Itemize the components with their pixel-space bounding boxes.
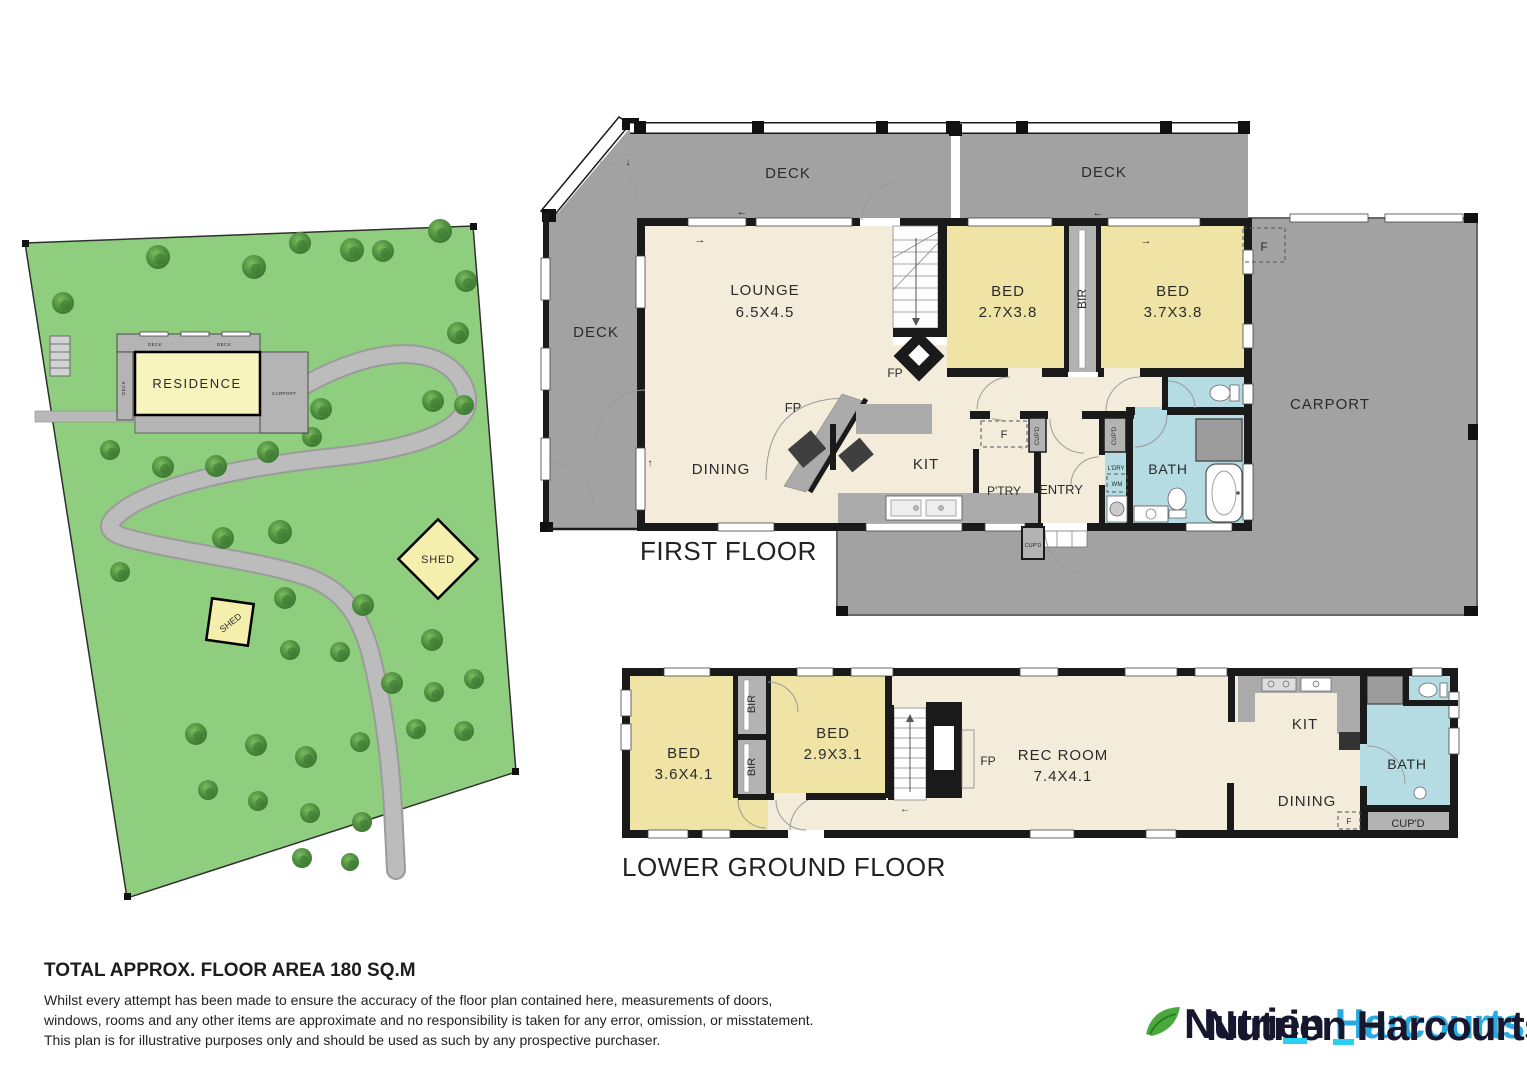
wall-bir — [1096, 226, 1101, 372]
tree-shade — [251, 264, 262, 275]
post — [1464, 213, 1478, 223]
disclaimer-line-1: Whilst every attempt has been made to en… — [44, 990, 904, 1010]
tree-shade — [213, 463, 223, 473]
bed1-label: BED — [991, 283, 1025, 300]
window — [1449, 728, 1459, 754]
arrow-down-icon: ↓ — [626, 157, 631, 168]
post — [949, 124, 962, 136]
wall-bir-mid — [738, 734, 768, 740]
lf-bir2-label: BIR — [746, 758, 758, 776]
shower — [1367, 676, 1403, 704]
site-deck-label-2: DECK — [217, 342, 231, 347]
tree-shade — [462, 403, 471, 412]
site-plan: DECK DECK DECK RESIDENCE CARPORT SHED SH… — [15, 215, 560, 905]
wall-bed2-right — [885, 676, 892, 798]
post — [752, 121, 764, 134]
tree-shade — [455, 330, 465, 340]
floor-area-title: TOTAL APPROX. FLOOR AREA 180 SQ.M — [44, 960, 904, 982]
lf-rec-size: 7.4X4.1 — [1034, 768, 1093, 785]
toilet — [1419, 683, 1447, 697]
sink — [1301, 678, 1331, 691]
window — [1030, 830, 1074, 838]
bed2-label: BED — [1156, 283, 1190, 300]
kitchen-bench-right — [1337, 676, 1360, 734]
tree-shade — [277, 529, 288, 540]
door-opening — [1008, 368, 1042, 377]
wall-stairs — [938, 226, 947, 337]
tree-shade — [155, 254, 166, 265]
cupd-label-1: CUP'D — [1035, 426, 1041, 445]
window — [756, 218, 852, 226]
site-window — [140, 332, 168, 336]
site-deck-label-side: DECK — [121, 381, 126, 395]
footer-block: TOTAL APPROX. FLOOR AREA 180 SQ.M Whilst… — [44, 960, 904, 1050]
window — [866, 523, 962, 531]
window — [688, 218, 746, 226]
logo-front-secondary: Harcourts — [1357, 1002, 1527, 1049]
lower-floor-title: LOWER GROUND FLOOR — [622, 852, 946, 882]
cupd-label-bottom: CUP'D — [1025, 543, 1042, 549]
kit-label: KIT — [913, 456, 939, 473]
lower-floor-svg: ← F BED 3.6X4.1 BED 2.9X3.1 BIR BIR FP R… — [615, 660, 1475, 885]
lounge-label: LOUNGE — [730, 282, 799, 299]
logo-front-primary: Nutrien — [1206, 1002, 1346, 1049]
wall-bath-bottom — [1367, 805, 1458, 811]
deck-side-label: DECK — [573, 324, 619, 341]
porch-step — [1043, 531, 1087, 547]
window — [1146, 830, 1176, 838]
lf-kit-label: KIT — [1292, 716, 1318, 733]
shed1-label: SHED — [421, 554, 455, 566]
post — [634, 121, 646, 134]
door-opening — [1043, 523, 1087, 531]
wall-bir — [1064, 226, 1069, 372]
window — [541, 258, 550, 300]
wall-fp — [830, 424, 836, 470]
tree-shade — [108, 448, 117, 457]
tree-shade — [60, 300, 70, 310]
window — [648, 830, 688, 838]
window — [985, 523, 1025, 531]
tree-shade — [300, 856, 309, 865]
lounge-size: 6.5X4.5 — [736, 304, 795, 321]
kitchen-bench-top — [856, 404, 932, 434]
carport-opening — [1385, 214, 1463, 222]
tree-shade — [349, 247, 360, 258]
arrow-right-icon: → — [695, 234, 706, 246]
first-floor-svg: FP CUP'D CUP'D CUP'D — [540, 115, 1490, 625]
stairs-lower — [894, 708, 926, 800]
boundary-peg — [470, 223, 477, 230]
oven — [1339, 732, 1360, 750]
window — [797, 668, 833, 676]
tree-shade — [206, 788, 215, 797]
tree-shade — [288, 648, 297, 657]
tree-shade — [462, 729, 471, 738]
tree-shade — [348, 860, 356, 868]
window — [1020, 668, 1058, 676]
room-bath — [1367, 703, 1450, 805]
tree-shade — [338, 650, 347, 659]
post — [1016, 121, 1028, 134]
toilet-wc — [1210, 385, 1239, 401]
carport-label: CARPORT — [1290, 396, 1370, 413]
brand-logo: Nutrien Harcourts Nutrien Harcourts — [1140, 988, 1527, 1072]
tree-shade — [318, 406, 328, 416]
post — [836, 606, 848, 616]
window — [541, 438, 550, 480]
window — [1243, 384, 1253, 404]
deck-side — [548, 213, 640, 530]
post — [540, 522, 553, 532]
window — [621, 690, 631, 716]
wall-wc-divider — [1405, 700, 1458, 706]
site-stairs — [50, 336, 70, 376]
door-opening — [1360, 744, 1367, 786]
tree-shade — [360, 820, 369, 829]
disclaimer-line-3: This plan is for illustrative purposes o… — [44, 1030, 904, 1050]
arrow-up-icon: ↑ — [648, 458, 653, 469]
door-opening — [860, 218, 900, 226]
post — [1160, 121, 1172, 134]
window — [664, 668, 710, 676]
first-floor-plan: FP CUP'D CUP'D CUP'D — [540, 115, 1490, 625]
wall-bed1-right — [733, 676, 738, 798]
vanity — [1134, 506, 1168, 522]
post — [1238, 121, 1250, 134]
sink — [886, 496, 962, 520]
lf-bed1-label: BED — [667, 745, 701, 762]
logo-front-layer: Nutrien Harcourts — [1206, 1002, 1527, 1050]
window — [968, 218, 1052, 226]
leaf-icon — [1144, 1004, 1184, 1042]
lf-rec-label: REC ROOM — [1018, 747, 1109, 764]
boundary-peg — [22, 240, 29, 247]
shower — [1196, 419, 1242, 461]
stairs-first-floor — [893, 226, 938, 328]
wall-bed1-bottom — [947, 368, 1068, 377]
tree-shade — [437, 228, 448, 239]
bath-label: BATH — [1148, 461, 1188, 477]
fp-label-2: FP — [785, 400, 802, 415]
arrow-right-icon: → — [1141, 235, 1152, 247]
tree-shade — [414, 727, 423, 736]
cooktop — [1262, 678, 1296, 691]
site-window — [222, 332, 250, 336]
window — [1412, 668, 1442, 676]
washer — [1107, 496, 1127, 522]
fridge-label: F — [1347, 817, 1352, 826]
entry-label: ENTRY — [1039, 482, 1083, 497]
tree-shade — [118, 570, 127, 579]
deck2-label: DECK — [1081, 164, 1127, 181]
dining-label: DINING — [692, 461, 751, 478]
logo-underline-1 — [1283, 1038, 1307, 1044]
wall-wc-left — [1162, 377, 1168, 410]
door-opening — [1099, 455, 1105, 485]
deck1-label: DECK — [765, 165, 811, 182]
lf-cupd-label: CUP'D — [1391, 818, 1424, 830]
cupd-label-2: CUP'D — [1112, 426, 1118, 445]
window — [541, 348, 550, 390]
carport-opening — [1290, 214, 1368, 222]
site-deck-top — [117, 334, 260, 352]
tree-shade — [282, 595, 292, 605]
window — [1186, 523, 1232, 531]
lower-floor-plan: ← F BED 3.6X4.1 BED 2.9X3.1 BIR BIR FP R… — [615, 660, 1475, 885]
bed2-size: 3.7X3.8 — [1144, 304, 1203, 321]
window — [636, 448, 645, 510]
tree-shade — [358, 740, 367, 749]
site-carport-label: CARPORT — [272, 391, 296, 396]
wall-bir-bottom — [738, 794, 768, 800]
ldry-label: L'DRY — [1107, 466, 1124, 472]
deck-divider — [951, 126, 960, 222]
tree-shade — [380, 248, 390, 258]
door-opening — [990, 411, 1020, 419]
wall-kitchen-stub — [1228, 676, 1235, 722]
tree-shade — [193, 731, 203, 741]
tree-shade — [463, 278, 473, 288]
lf-fp-label: FP — [980, 754, 995, 768]
tree-shade — [303, 754, 313, 764]
tree-shade — [389, 680, 399, 690]
basin — [1414, 787, 1426, 799]
tree-shade — [297, 240, 307, 250]
window — [851, 668, 893, 676]
boundary-peg — [124, 893, 131, 900]
site-plan-svg: DECK DECK DECK RESIDENCE CARPORT SHED SH… — [15, 215, 560, 905]
lf-bed1-size: 3.6X4.1 — [655, 766, 714, 783]
tree-shade — [472, 677, 481, 686]
door-opening — [1048, 411, 1082, 419]
disclaimer-line-2: windows, rooms and any other items are a… — [44, 1010, 904, 1030]
door-opening — [774, 793, 806, 800]
tree-shade — [256, 799, 265, 808]
window — [621, 724, 631, 750]
site-residence-label: RESIDENCE — [152, 376, 241, 391]
tree-shade — [310, 435, 319, 444]
wm-label: WM — [1112, 482, 1123, 488]
arrow-left-icon: ← — [1093, 207, 1104, 219]
lf-dining-label: DINING — [1278, 793, 1337, 810]
pantry-label: P'TRY — [987, 484, 1021, 498]
lf-bath-label: BATH — [1387, 756, 1427, 772]
fridge-label-kit: F — [1001, 429, 1008, 441]
toilet-bath — [1168, 488, 1186, 518]
window — [1195, 668, 1227, 676]
window — [1243, 324, 1253, 348]
post — [1464, 606, 1478, 616]
kitchen-bench-left — [1238, 676, 1255, 722]
window — [718, 523, 774, 531]
bed1-size: 2.7X3.8 — [979, 304, 1038, 321]
fridge-label-carport: F — [1260, 240, 1267, 254]
bathtub — [1206, 464, 1242, 522]
door-opening — [788, 830, 824, 838]
site-deck-label-1: DECK — [148, 342, 162, 347]
tree-shade — [265, 449, 275, 459]
tree-shade — [253, 742, 263, 752]
lf-bed2-size: 2.9X3.1 — [804, 746, 863, 763]
boundary-peg — [512, 768, 519, 775]
window — [702, 830, 730, 838]
window — [1108, 218, 1200, 226]
tree-shade — [430, 398, 440, 408]
tree-shade — [432, 690, 441, 699]
site-window — [181, 332, 209, 336]
door-opening — [1104, 368, 1140, 377]
window — [1243, 464, 1253, 520]
arrow-left-icon: ← — [737, 206, 748, 218]
window — [636, 256, 645, 308]
deck-rail — [630, 122, 1248, 134]
logo-underline-2 — [1333, 1039, 1354, 1045]
wall-dining-stub — [1227, 783, 1234, 830]
first-floor-title: FIRST FLOOR — [640, 536, 817, 566]
lf-bir1-label: BIR — [746, 695, 758, 713]
bir-label: BIR — [1075, 289, 1089, 309]
tree-shade — [160, 464, 170, 474]
tree-shade — [429, 637, 439, 647]
tree-shade — [220, 535, 230, 545]
window — [1125, 668, 1177, 676]
post — [1468, 424, 1478, 440]
lf-bed2-label: BED — [816, 725, 850, 742]
post — [876, 121, 888, 134]
tree-shade — [360, 602, 370, 612]
tree-shade — [308, 811, 317, 820]
fp-label-1: FP — [887, 366, 902, 380]
arrow-left-icon: ← — [900, 804, 910, 815]
